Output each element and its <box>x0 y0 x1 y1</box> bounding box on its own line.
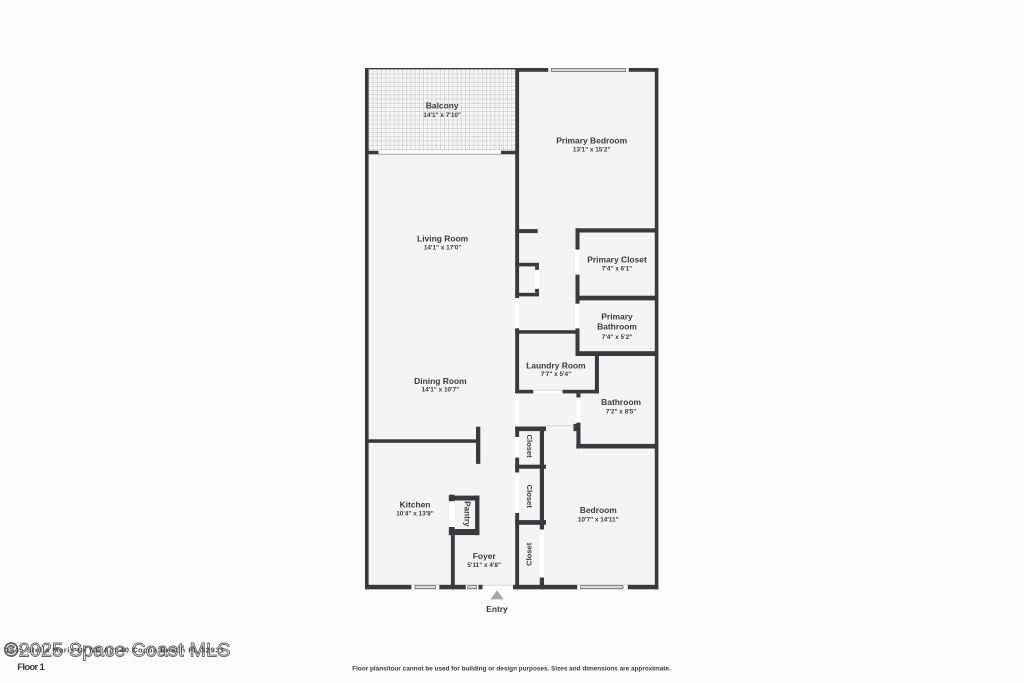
svg-text:14'1" x 7'10": 14'1" x 7'10" <box>423 112 461 119</box>
svg-text:Foyer: Foyer <box>473 551 497 561</box>
svg-text:7'7" x 5'4": 7'7" x 5'4" <box>541 371 571 378</box>
svg-text:Primary Closet: Primary Closet <box>587 255 647 265</box>
svg-text:Dining Room: Dining Room <box>414 376 467 386</box>
svg-text:Floor plans/tour cannot be use: Floor plans/tour cannot be used for buil… <box>352 665 671 672</box>
svg-text:14'1" x 17'0": 14'1" x 17'0" <box>424 244 462 251</box>
svg-text:Primary: Primary <box>601 311 633 321</box>
svg-text:7'4" x 6'1": 7'4" x 6'1" <box>602 266 632 273</box>
svg-text:Closet: Closet <box>524 542 533 566</box>
svg-text:14'1" x 10'7": 14'1" x 10'7" <box>422 387 460 394</box>
svg-text:Bathroom: Bathroom <box>601 397 641 407</box>
svg-text:1945 Stella Maris Dr NE Apt 40: 1945 Stella Maris Dr NE Apt 40 Cocoa Bea… <box>5 646 225 655</box>
svg-text:Balcony: Balcony <box>426 101 459 111</box>
svg-text:5'11" x 4'8": 5'11" x 4'8" <box>467 562 501 569</box>
svg-text:Closet: Closet <box>525 485 534 509</box>
svg-text:Living Room: Living Room <box>417 233 468 243</box>
svg-text:Closet: Closet <box>525 434 534 458</box>
svg-text:Laundry Room: Laundry Room <box>526 360 586 370</box>
svg-text:Bedroom: Bedroom <box>580 505 617 515</box>
svg-text:Entry: Entry <box>486 604 508 614</box>
svg-text:Kitchen: Kitchen <box>400 499 431 509</box>
svg-text:7'2" x 8'5": 7'2" x 8'5" <box>606 409 636 416</box>
svg-text:10'7" x 14'11": 10'7" x 14'11" <box>578 517 619 524</box>
svg-text:Primary Bedroom: Primary Bedroom <box>556 135 627 145</box>
svg-text:7'4" x 5'2": 7'4" x 5'2" <box>602 334 632 341</box>
svg-text:13'1" x 15'2": 13'1" x 15'2" <box>573 147 611 154</box>
svg-text:Floor 1: Floor 1 <box>17 662 45 673</box>
svg-text:10'4" x 13'8": 10'4" x 13'8" <box>396 511 434 518</box>
svg-text:Bathroom: Bathroom <box>597 321 637 331</box>
svg-text:Pantry: Pantry <box>462 501 471 527</box>
